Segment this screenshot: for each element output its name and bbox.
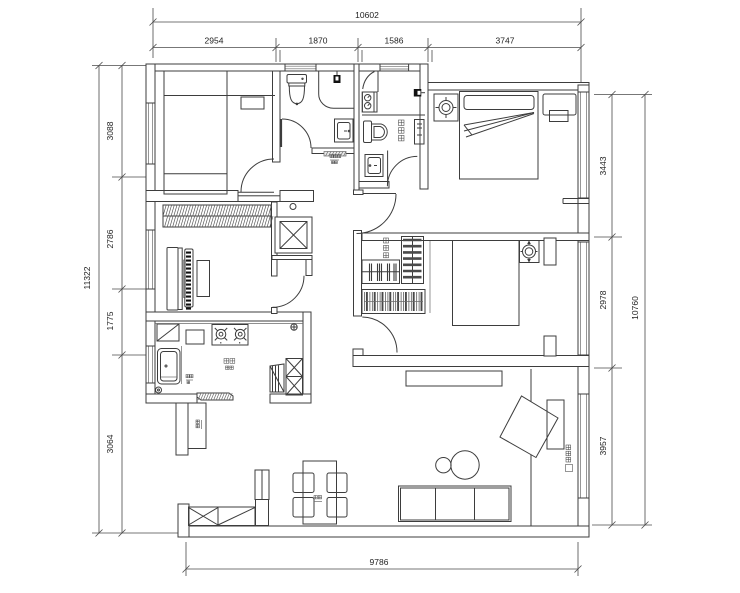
svg-text:1586: 1586 [385, 36, 404, 46]
svg-text:3088: 3088 [105, 121, 115, 140]
svg-text:2978: 2978 [598, 290, 608, 309]
svg-text:9786: 9786 [370, 557, 389, 567]
svg-text:2954: 2954 [205, 36, 224, 46]
svg-text:3957: 3957 [598, 436, 608, 455]
svg-text:1775: 1775 [105, 311, 115, 330]
svg-text:3064: 3064 [105, 434, 115, 453]
svg-text:10760: 10760 [630, 296, 640, 320]
svg-text:1870: 1870 [309, 36, 328, 46]
svg-text:3747: 3747 [496, 36, 515, 46]
svg-text:10602: 10602 [355, 10, 379, 20]
svg-text:2786: 2786 [105, 229, 115, 248]
svg-text:3443: 3443 [598, 156, 608, 175]
svg-text:11322: 11322 [82, 266, 92, 289]
